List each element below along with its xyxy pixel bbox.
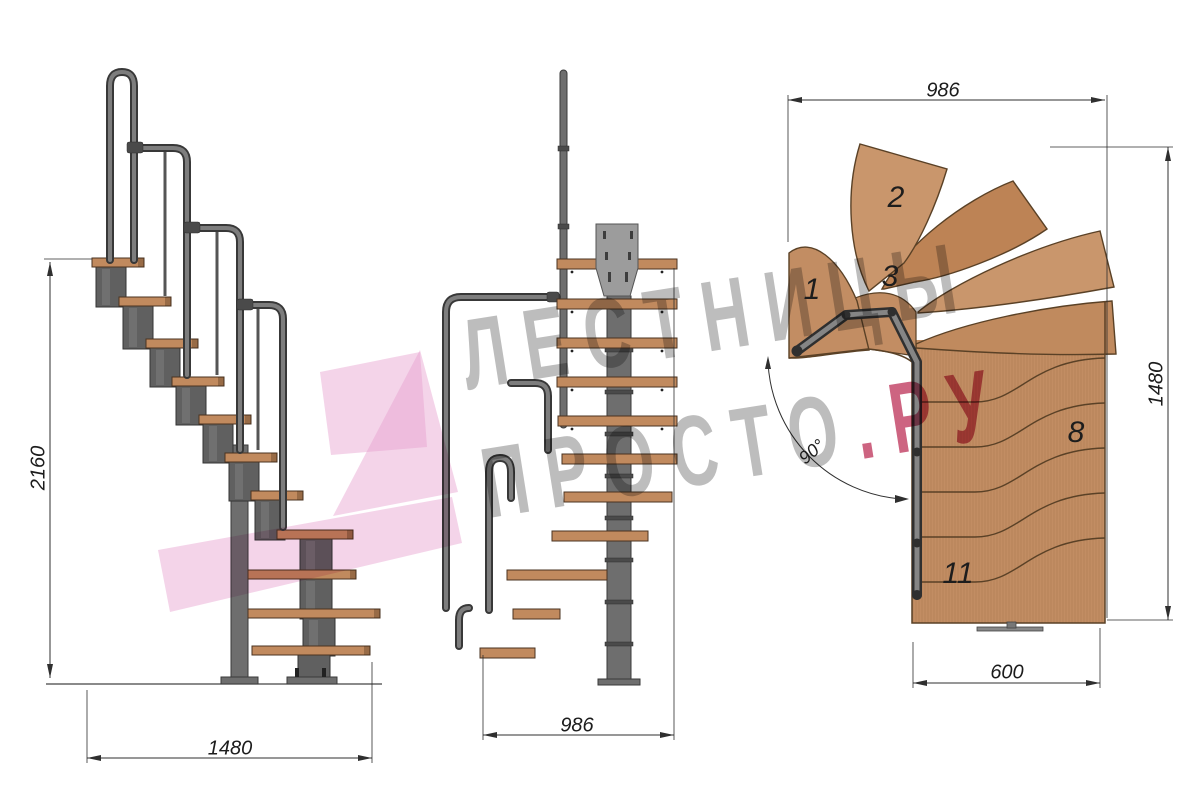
- dim-plan-bottom-width: 600: [990, 662, 1023, 685]
- step-label-2: 2: [888, 181, 905, 215]
- dim-front-width: 986: [560, 715, 593, 738]
- step-label-11: 11: [942, 557, 973, 591]
- step-label-3: 3: [882, 260, 899, 294]
- dim-side-height: 2160: [28, 446, 51, 491]
- dim-plan-top-width: 986: [926, 80, 959, 103]
- step-label-1: 1: [804, 273, 821, 307]
- dim-plan-height: 1480: [1146, 362, 1169, 407]
- step-label-8: 8: [1068, 416, 1085, 450]
- watermark-line2-pink: .РУ: [846, 346, 1015, 481]
- dim-side-width: 1480: [208, 738, 253, 761]
- staircase-technical-drawing: ЛЕСТНИЦЫ ПРОСТО.РУ 2160 1480 986 986 148…: [0, 0, 1200, 807]
